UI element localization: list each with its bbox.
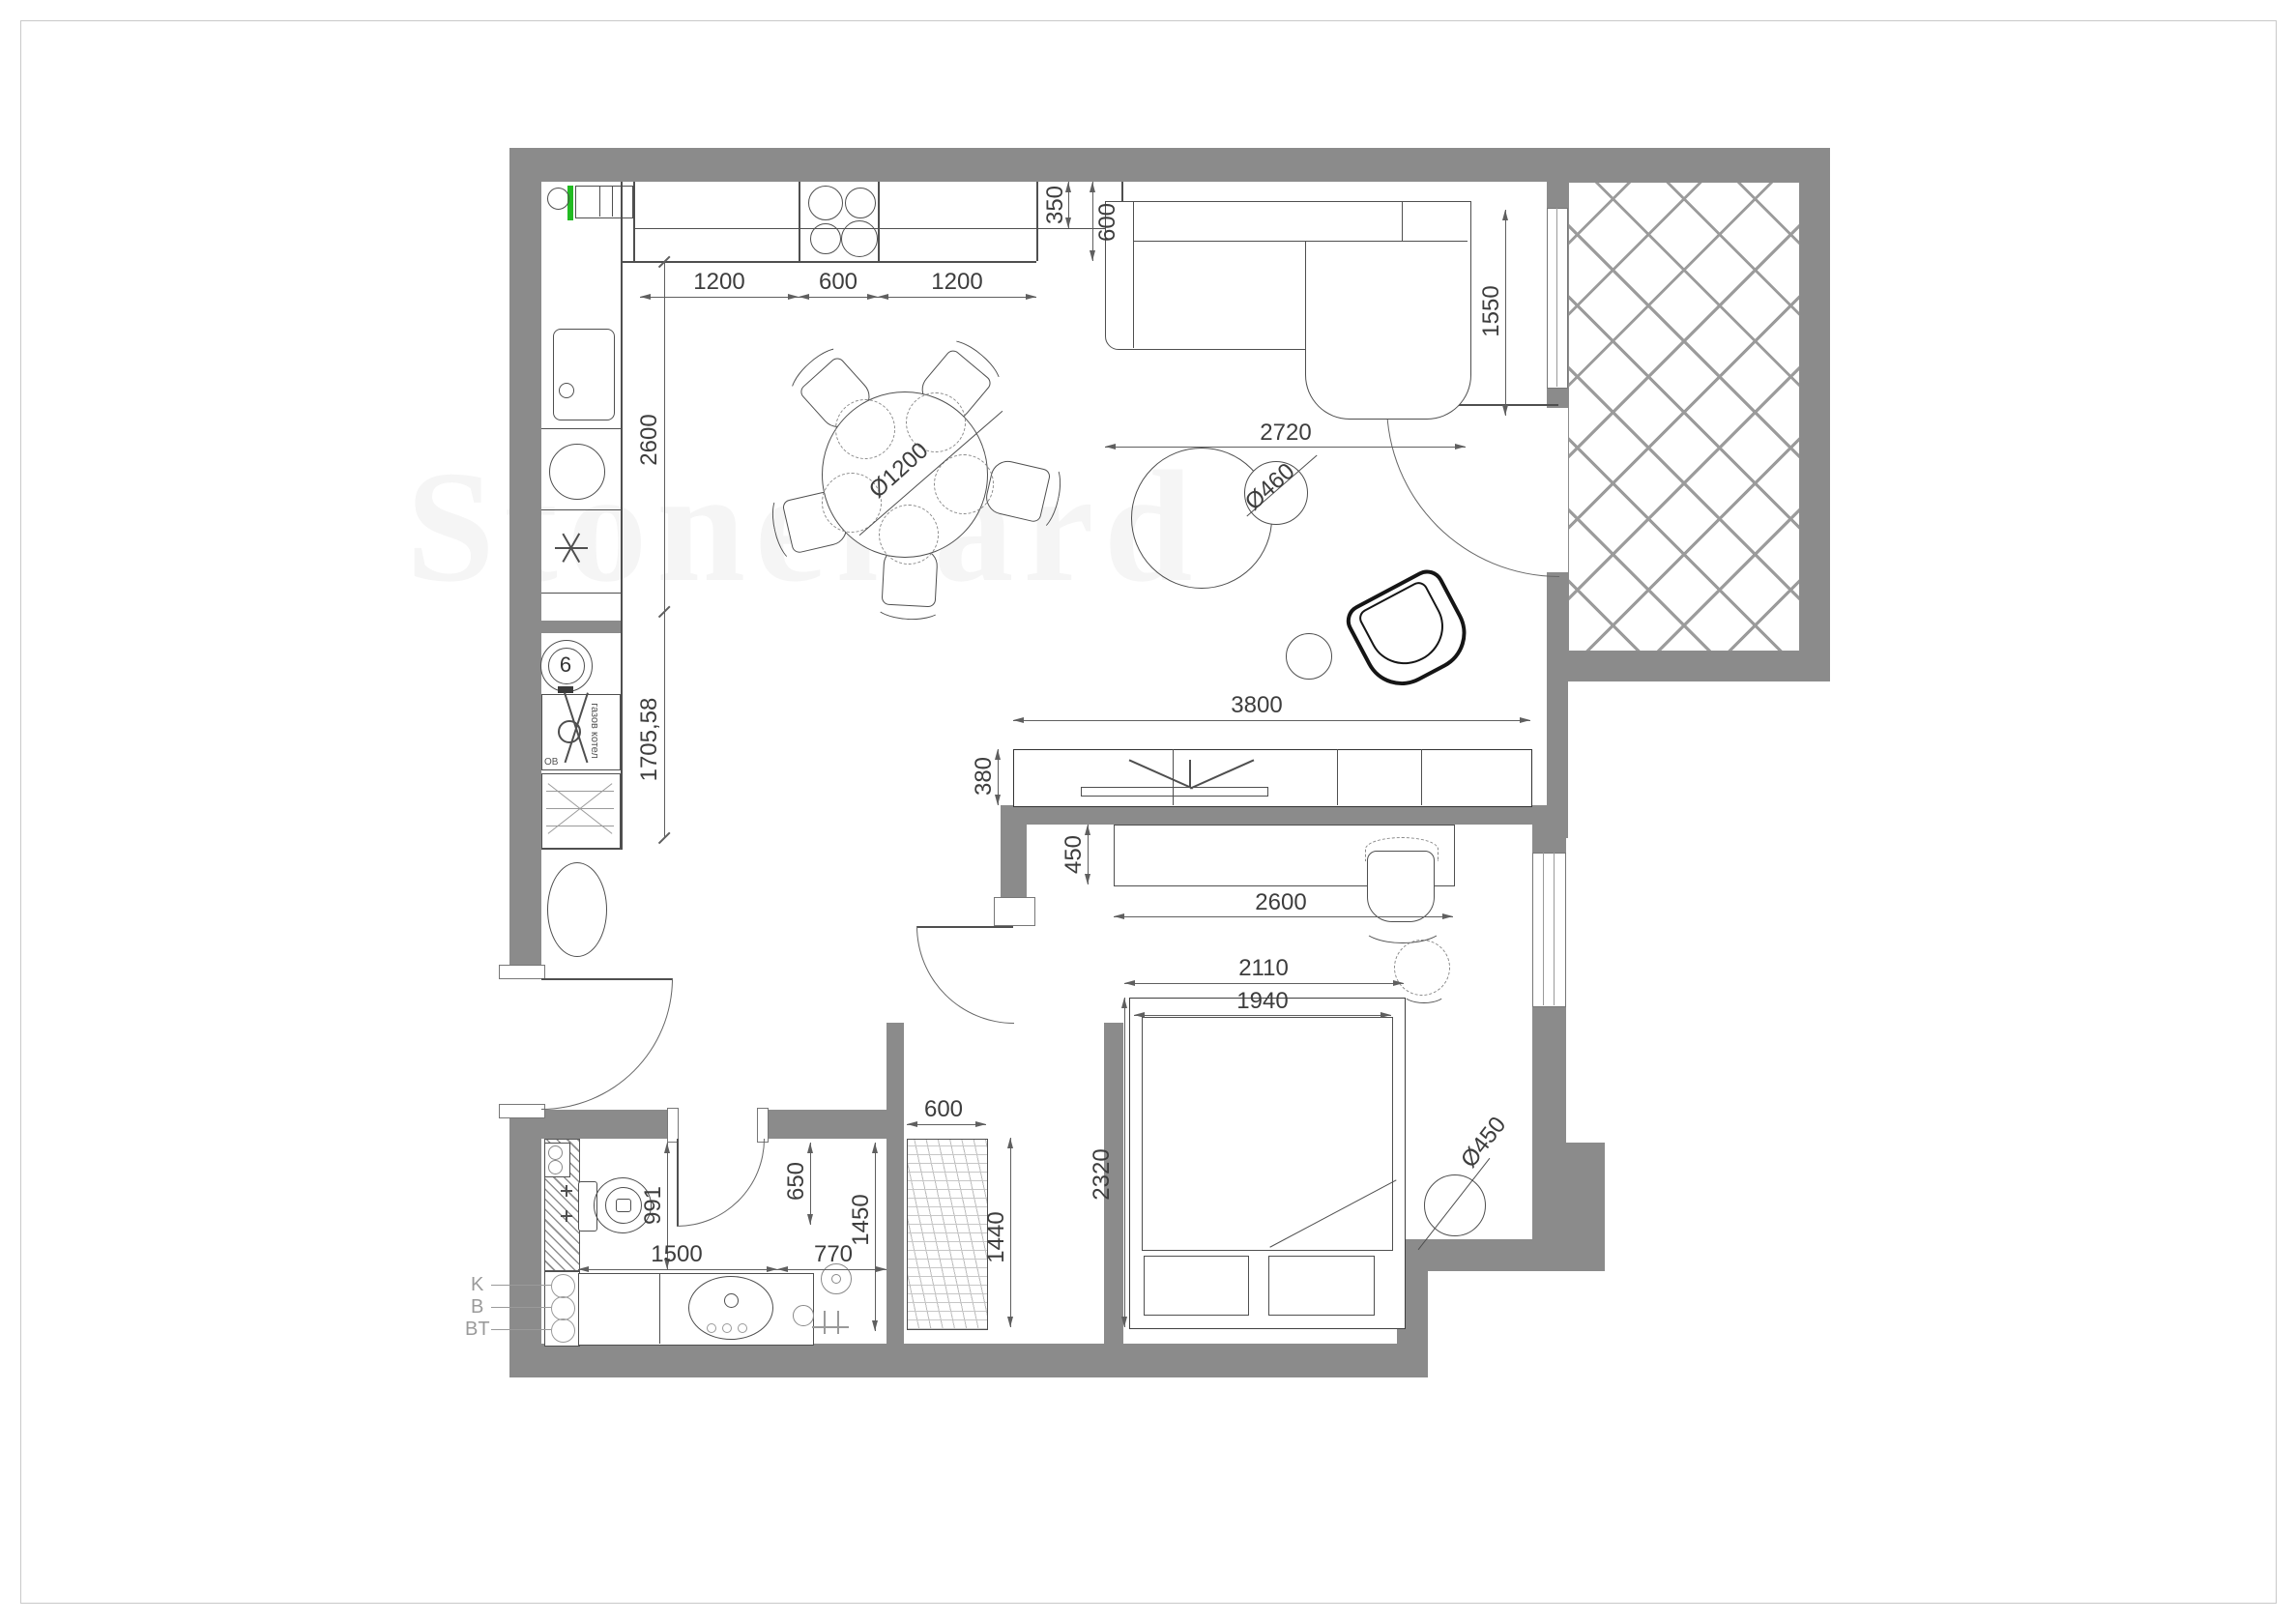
wall-bottom-main [509,1344,1428,1377]
dim-line [810,1143,811,1225]
dim-label: 600 [924,1098,963,1121]
living-balcony-window [1547,208,1568,389]
coffee-table-large [1131,448,1272,589]
shower-mixer-knob [793,1305,814,1326]
dim-label: 380 [973,757,996,796]
dim-label: 2600 [1255,891,1306,914]
sink-unit-cabinet [575,186,633,218]
cabinet-divider [612,186,613,217]
dim-label: 1550 [1480,285,1503,336]
wall-balcony-bottom [1568,650,1798,681]
dim-line [1124,998,1125,1327]
cabinet-divider [541,428,621,429]
stove-burner-icon [845,188,876,218]
stove-burner-icon [841,220,878,257]
connection-cross [566,1210,567,1222]
riser-leader-line [491,1285,551,1286]
counter-front-vertical [621,182,623,849]
washing-machine-icon [549,444,605,500]
vanity-divider [659,1273,660,1344]
dim-line [907,1124,986,1125]
console-divider [1337,749,1338,805]
counter-divider [799,182,800,261]
sofa-back-line [1133,241,1468,242]
hallway-rug [547,862,607,957]
dim-label: 2110 [1238,957,1289,980]
nightstand-arc [1402,982,1446,1003]
dim-label: 2720 [1260,421,1311,445]
dim-label: 600 [819,271,857,294]
floor-ball-decor [1286,633,1332,680]
stove-burner-icon [810,223,841,254]
dim-label: 1450 [850,1194,873,1245]
toilet-drain [616,1199,631,1212]
shower-rail-post [837,1311,839,1334]
window-frame-line [1543,853,1544,1005]
riser-pipe [551,1319,575,1343]
riser-label-k: K [471,1274,483,1296]
boiler-label: газов котел [589,703,600,759]
dim-line [664,261,665,837]
wall-balcony-right [1798,148,1830,681]
sink-dot [738,1323,747,1333]
cabinet-divider [599,186,600,217]
tv-bracket-line [1189,760,1191,787]
dim-line [1505,210,1506,416]
dim-label: 2320 [1090,1148,1114,1200]
chair-base-arc [1361,909,1444,943]
dim-label: 650 [785,1162,808,1201]
tv-stand-plate [1081,787,1268,797]
boiler-ring-icon [558,720,581,743]
dim-line [1010,1138,1011,1327]
console-divider [1421,749,1422,805]
dim-label: 1940 [1236,990,1288,1013]
window-frame-line [1556,208,1557,387]
counter-divider [1036,182,1038,261]
wall-bath-top-a [541,1110,674,1139]
gas-meter-number: 6 [560,652,571,678]
riser-leader-line [491,1307,551,1308]
bed-drawer [1268,1256,1375,1316]
dim-line [1013,720,1530,721]
wall-bath-top-b [762,1110,886,1139]
console-divider [1173,749,1174,805]
chair-tuck-dashed [879,505,939,565]
dim-line [1134,1015,1391,1016]
pouf [1424,1174,1486,1236]
sofa-divider-line [1402,201,1403,241]
bedroom-window [1532,853,1566,1007]
entrance-jamb-top [499,965,545,979]
wardrobe [907,1139,988,1330]
dim-label: 1500 [651,1243,702,1266]
riser-pipe [551,1296,575,1320]
dim-line [1124,983,1404,984]
riser-label-b: B [471,1296,483,1319]
dim-label: 2600 [638,414,661,465]
sink-dot [722,1323,732,1333]
valve-icon [548,1160,563,1174]
wall-niche [886,1023,904,1347]
cabinet-divider [541,593,621,594]
dim-line [777,1269,886,1270]
floorplan-page: { "meta": { "type": "architectural-floor… [0,0,2296,1623]
dim-label: 1200 [931,271,982,294]
sofa-arm-line [1133,201,1134,348]
entrance-jamb-bottom [499,1104,545,1118]
sink-drain-icon [724,1293,739,1308]
bed-mattress [1142,1017,1393,1251]
dim-line [1092,182,1093,261]
dim-line [875,1143,876,1331]
stove-burner-icon [808,186,843,220]
sink-dot [707,1323,716,1333]
shower-rail-post [824,1311,826,1334]
faucet-icon [547,188,569,210]
bath-door-jamb [757,1108,769,1143]
dim-label: 3800 [1231,694,1282,717]
shower-rail [812,1326,849,1328]
wall-top [509,148,1830,182]
dim-label: 1705,58 [638,698,661,782]
counter-divider [878,182,880,261]
desk-chair [1361,837,1442,953]
dim-label: 350 [1044,186,1067,224]
dim-line [1088,825,1089,884]
cabinet-divider [541,509,621,510]
wall-living-right [1547,572,1568,838]
dim-line [1105,447,1466,448]
dim-line [878,297,1036,298]
dim-label: 1200 [693,271,744,294]
valve-icon [548,1145,563,1160]
dim-line [998,749,999,805]
counter-divider [633,182,635,261]
dim-line [578,1269,777,1270]
riser-label-bt: BT [465,1319,490,1341]
wall-tv [1001,805,1547,825]
wall-bedroom-door-stub [1001,825,1027,899]
kitchen-sink [553,329,615,420]
dim-label: 770 [814,1243,853,1266]
tv-console [1013,749,1532,807]
bedroom-door-frame [994,897,1035,926]
wall-kitchen-partition [509,621,621,633]
counter-front-horizontal [621,261,1036,263]
dim-line [1068,182,1069,228]
connection-cross [566,1185,567,1197]
shower-head-center [831,1274,841,1284]
riser-pipe [551,1274,575,1298]
dim-label: 1440 [985,1211,1008,1262]
sink-drain-icon [559,383,574,398]
riser-leader-line [491,1329,551,1330]
window-frame-line [1554,853,1555,1005]
wall-living-right-stub-top [1547,182,1568,208]
dim-label: 450 [1062,835,1086,874]
boiler-ov-label: ОВ [544,757,558,768]
dim-line [1114,916,1453,917]
wall-bedroom-right [1532,1005,1566,1239]
bath-door-jamb [667,1108,679,1143]
wall-left-upper [509,182,541,976]
wall-left-lower [509,1110,541,1377]
dim-label: 600 [1096,203,1119,242]
dim-line [799,297,878,298]
chair-tuck-dashed [835,399,895,459]
balcony-floor-hatch [1568,182,1800,652]
bed-drawer [1144,1256,1249,1316]
sofa-chaise [1305,242,1471,420]
dim-label: 991 [642,1186,665,1225]
